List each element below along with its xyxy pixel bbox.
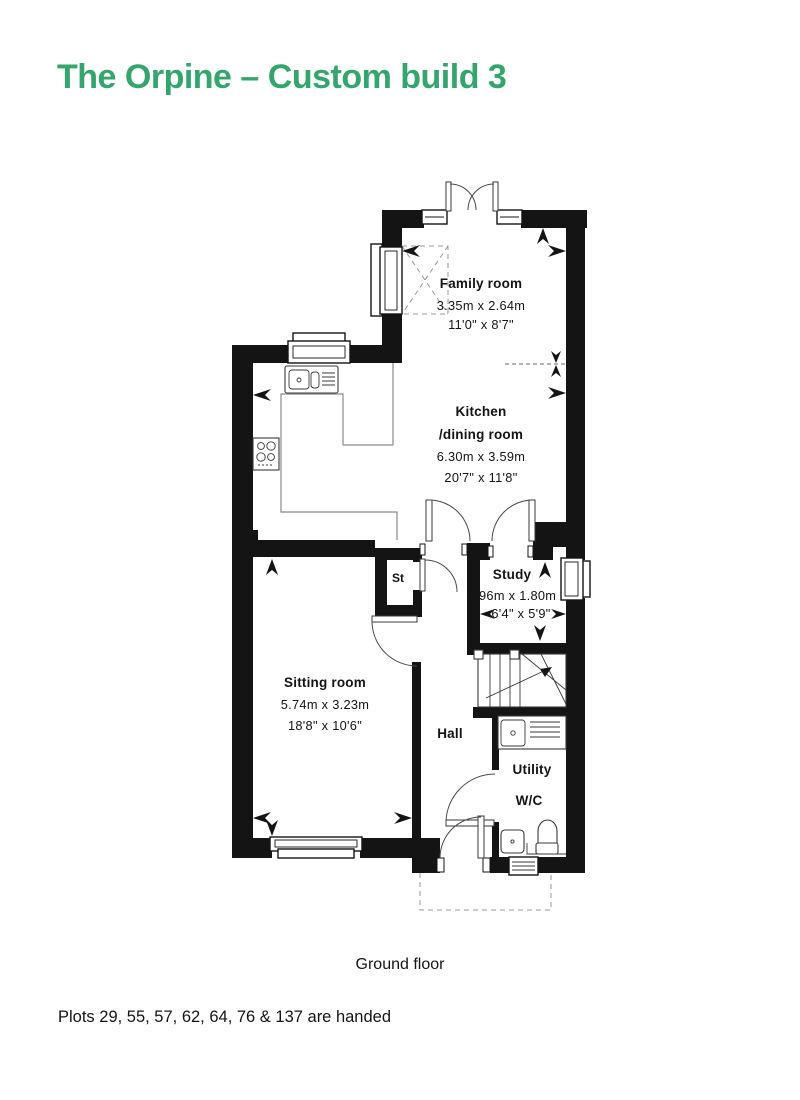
kitchen-sink-icon: [285, 366, 338, 393]
room-label-store: St: [392, 571, 404, 585]
room-dim-family-metric: 3.35m x 2.64m: [437, 298, 526, 313]
study-window: [561, 558, 590, 600]
store-door: [420, 559, 457, 592]
stairs-icon: [474, 650, 566, 707]
floor-plan-svg: Family room 3.35m x 2.64m 11'0" x 8'7" K…: [0, 0, 800, 1100]
toilet-icon: [527, 820, 566, 854]
room-dim-kitchen-imperial: 20'7" x 11'8": [444, 470, 517, 485]
french-doors: [422, 182, 522, 224]
family-room-window: [371, 244, 402, 316]
room-dim-kitchen-metric: 6.30m x 3.59m: [437, 449, 526, 464]
kitchen-window: [288, 333, 350, 363]
room-dim-study-imperial: 6'4" x 5'9": [491, 606, 550, 621]
sitting-room-door: [372, 616, 417, 666]
handed-plots-note: Plots 29, 55, 57, 62, 64, 76 & 137 are h…: [58, 1008, 391, 1027]
room-label-wc: W/C: [516, 793, 543, 808]
room-dim-family-imperial: 11'0" x 8'7": [448, 317, 514, 332]
room-label-hall: Hall: [437, 726, 463, 741]
room-label-kitchen: Kitchen: [456, 404, 507, 419]
room-label-sitting: Sitting room: [284, 675, 366, 690]
wc-window: [509, 857, 538, 875]
sitting-room-window: [270, 837, 362, 858]
porch-canopy-icon: [420, 873, 551, 910]
room-dim-study-metric: 1.96m x 1.80m: [468, 588, 557, 603]
room-dim-sitting-metric: 5.74m x 3.23m: [281, 697, 370, 712]
floorplan-page: The Orpine – Custom build 3: [0, 0, 800, 1100]
hob-icon: [253, 438, 279, 470]
floor-caption: Ground floor: [356, 956, 446, 973]
room-label-study: Study: [493, 567, 532, 582]
room-label-utility: Utility: [513, 762, 552, 777]
kitchen-door: [420, 500, 470, 555]
study-door: [488, 500, 535, 557]
utility-sink-icon: [498, 716, 566, 749]
room-label-family: Family room: [440, 276, 522, 291]
room-dim-sitting-imperial: 18'8" x 10'6": [288, 718, 362, 733]
room-label-kitchen-2: /dining room: [439, 427, 523, 442]
basin-icon: [501, 830, 524, 853]
